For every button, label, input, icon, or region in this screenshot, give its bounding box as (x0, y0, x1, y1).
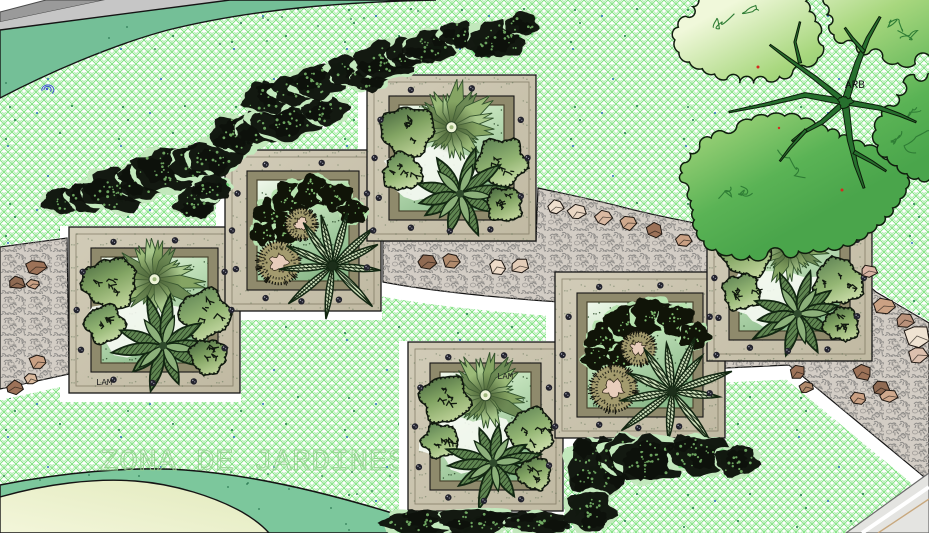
svg-text:LAM: LAM (96, 378, 112, 388)
svg-text:ARB: ARB (845, 80, 865, 92)
svg-text:LAM: LAM (497, 372, 513, 382)
svg-text:ZONA DE JARDINES: ZONA DE JARDINES (100, 445, 407, 480)
